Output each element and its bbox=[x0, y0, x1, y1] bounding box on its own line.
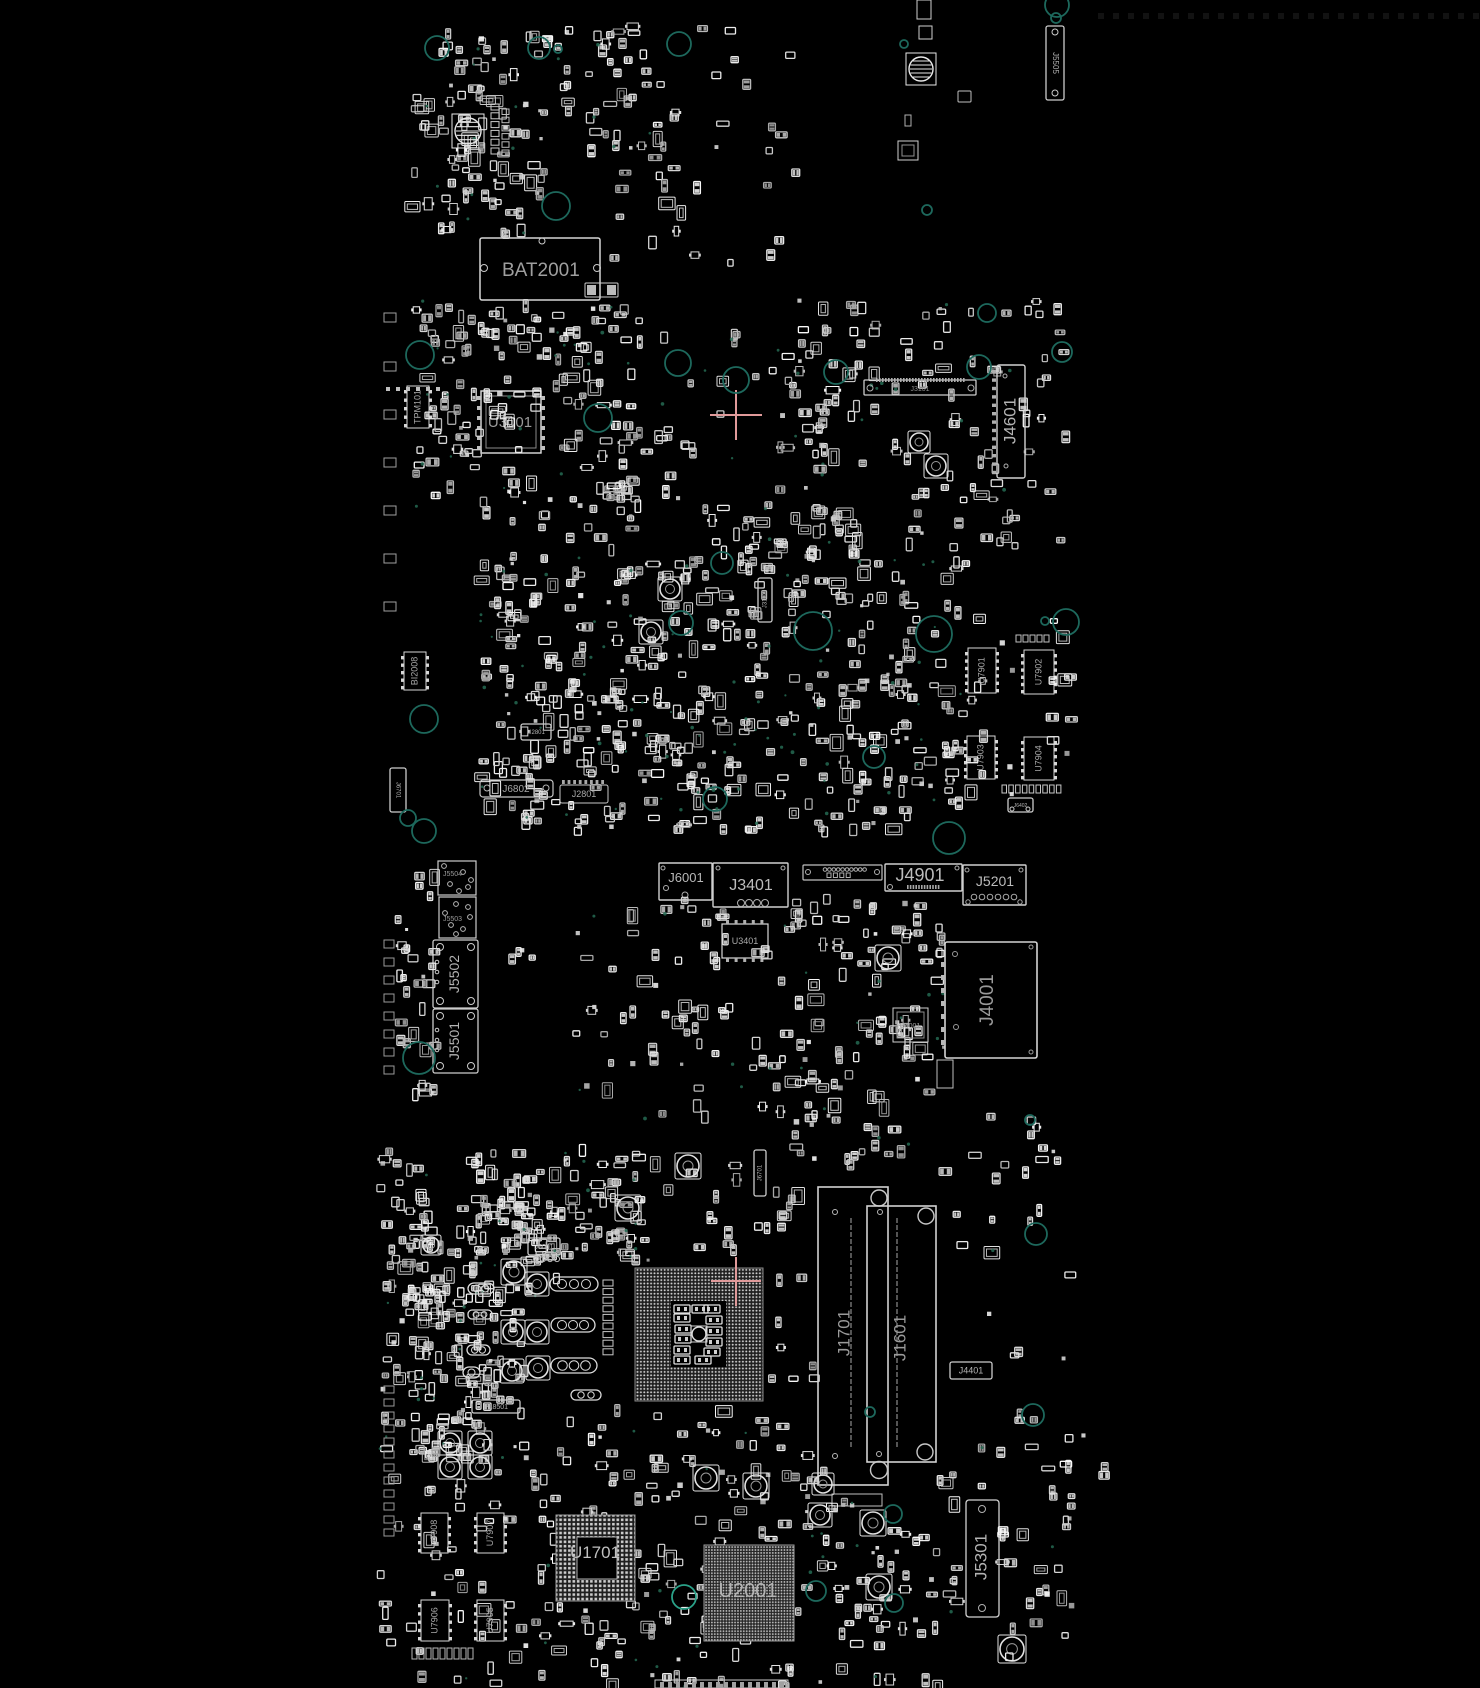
svg-text:BI2008: BI2008 bbox=[409, 657, 419, 686]
svg-text:J3101: J3101 bbox=[910, 386, 929, 393]
svg-text:PL8501: PL8501 bbox=[484, 1404, 508, 1411]
svg-text:J3401: J3401 bbox=[729, 877, 773, 894]
svg-text:U7902: U7902 bbox=[1033, 659, 1043, 686]
svg-text:J1701: J1701 bbox=[834, 1310, 853, 1356]
svg-text:U7905: U7905 bbox=[485, 1607, 495, 1634]
svg-text:J4901: J4901 bbox=[895, 865, 944, 885]
svg-text:U7907: U7907 bbox=[485, 1520, 495, 1547]
svg-text:U7908: U7908 bbox=[429, 1520, 439, 1547]
svg-text:J5001: J5001 bbox=[534, 1244, 553, 1251]
svg-text:J6001: J6001 bbox=[668, 870, 703, 885]
svg-text:J4601: J4601 bbox=[1000, 398, 1019, 444]
svg-text:U7904: U7904 bbox=[1033, 745, 1043, 772]
svg-text:J4401: J4401 bbox=[959, 1366, 984, 1376]
svg-text:J6802: J6802 bbox=[502, 784, 530, 795]
svg-text:U2001: U2001 bbox=[719, 1580, 778, 1602]
svg-text:U1701: U1701 bbox=[570, 1543, 620, 1562]
svg-text:J5201: J5201 bbox=[976, 873, 1014, 889]
svg-text:U2801: U2801 bbox=[527, 730, 545, 736]
svg-text:J5504: J5504 bbox=[443, 871, 462, 878]
svg-text:J6701: J6701 bbox=[394, 782, 400, 799]
svg-text:J6402: J6402 bbox=[1014, 803, 1028, 809]
svg-text:J5505: J5505 bbox=[1051, 52, 1060, 74]
svg-text:J5503: J5503 bbox=[443, 916, 462, 923]
svg-text:TPM101: TPM101 bbox=[412, 390, 422, 424]
svg-text:U7906: U7906 bbox=[429, 1607, 439, 1634]
svg-text:U4001: U4001 bbox=[900, 1023, 921, 1030]
svg-text:J5502: J5502 bbox=[446, 955, 462, 993]
svg-text:J3102: J3102 bbox=[763, 591, 769, 608]
svg-text:J5301: J5301 bbox=[971, 1534, 990, 1580]
svg-text:J1601: J1601 bbox=[890, 1315, 909, 1361]
svg-text:J6701: J6701 bbox=[758, 1164, 764, 1181]
svg-text:U3401: U3401 bbox=[732, 936, 759, 946]
svg-text:J4001: J4001 bbox=[977, 974, 998, 1026]
svg-text:J5501: J5501 bbox=[446, 1022, 462, 1060]
svg-text:J2801: J2801 bbox=[572, 789, 597, 799]
svg-text:BAT2001: BAT2001 bbox=[502, 260, 580, 281]
